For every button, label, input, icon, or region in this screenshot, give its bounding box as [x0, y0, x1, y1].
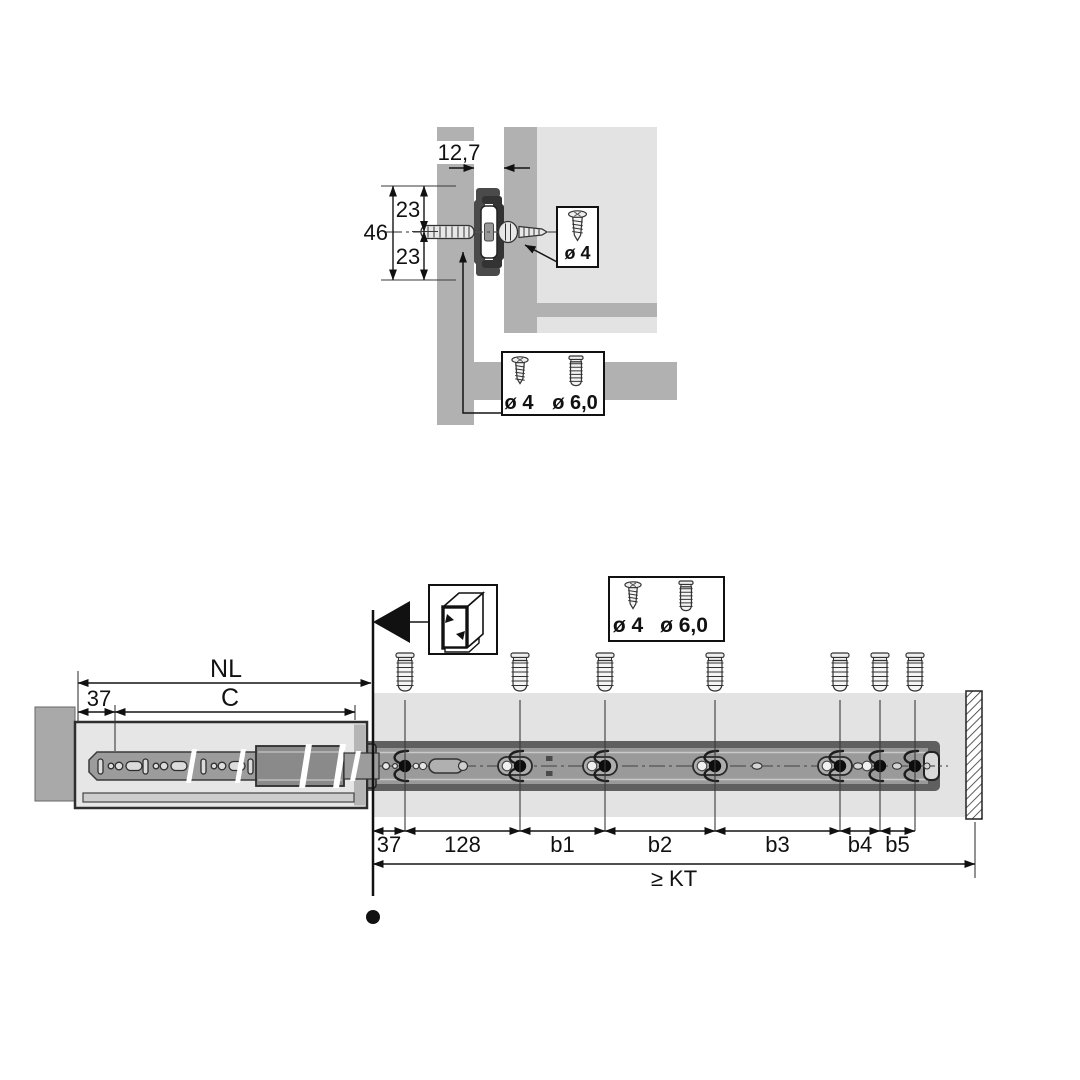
- rail-hole: [459, 762, 468, 771]
- technical-drawing-page: 12,7 46 23 23 ø 4 ø 4: [0, 0, 1080, 1080]
- cabinet-icon-callout: [429, 585, 497, 654]
- euro-screw-icon: [706, 653, 724, 691]
- dim-segment-label: b3: [765, 832, 789, 857]
- front-offset-label: 37: [87, 686, 111, 711]
- euro-screw-icon: [679, 581, 693, 611]
- euro-screw-icon: [831, 653, 849, 691]
- euro-screw-icon: [511, 653, 529, 691]
- dim-segment-label: b2: [648, 832, 672, 857]
- cabinet-back-wall: [966, 691, 982, 819]
- dim-segment-label: b5: [885, 832, 909, 857]
- adjust-range-label: C: [221, 684, 239, 712]
- screw-label-2: ø 6,0: [660, 614, 708, 637]
- cabinet-front-icon: [443, 593, 483, 652]
- screw-label-1: ø 4: [613, 614, 644, 637]
- dim-total-height-label: 46: [364, 220, 388, 245]
- front-edge-arrow-icon: [373, 601, 410, 643]
- top-cross-section-view: 12,7 46 23 23 ø 4 ø 4: [364, 127, 677, 425]
- reference-dot: [366, 910, 380, 924]
- mounting-screws-callout: ø 4 ø 6,0: [609, 577, 724, 641]
- rail-hole: [893, 763, 902, 769]
- euro-screw-icon: [906, 653, 924, 691]
- cabinet-rail: [352, 741, 948, 791]
- euro-screw-icon: [596, 653, 614, 691]
- dim-segment-label: b4: [848, 832, 872, 857]
- rail-length-label: NL: [210, 655, 242, 683]
- cabinet-screw-label-2: ø 6,0: [552, 392, 598, 414]
- cabinet-side-panel: [437, 127, 474, 425]
- side-mounting-view: ø 4 ø 6,0 37128b1b2b3b4b5 ≥ KT NL 37 C: [35, 577, 982, 924]
- drawer-bottom-edge: [83, 793, 354, 802]
- mounting-screw-row: [396, 653, 924, 691]
- dim-segment-label: 128: [444, 832, 481, 857]
- cabinet-screw-label-1: ø 4: [505, 392, 535, 414]
- euro-screw-icon: [396, 653, 414, 691]
- drawer-assembly: [35, 707, 397, 808]
- drawer-slide-installation-diagram: 12,7 46 23 23 ø 4 ø 4: [0, 0, 1080, 1080]
- hole-spacing-dimensions: 37128b1b2b3b4b5: [373, 831, 915, 857]
- euro-screw-icon: [569, 356, 583, 386]
- rail-hole: [854, 763, 863, 769]
- dim-lower-offset-label: 23: [396, 244, 420, 269]
- rail-hole: [752, 763, 762, 769]
- dim-segment-label: 37: [377, 832, 401, 857]
- euro-screw-icon: [871, 653, 889, 691]
- drawer-screw-label: ø 4: [564, 243, 590, 263]
- dim-segment-label: b1: [550, 832, 574, 857]
- drawer-front-panel: [35, 707, 75, 801]
- dim-upper-offset-label: 23: [396, 197, 420, 222]
- min-depth-label: ≥ KT: [651, 866, 697, 891]
- drawer-bottom-panel: [533, 303, 657, 317]
- dim-gap-width-label: 12,7: [438, 140, 481, 165]
